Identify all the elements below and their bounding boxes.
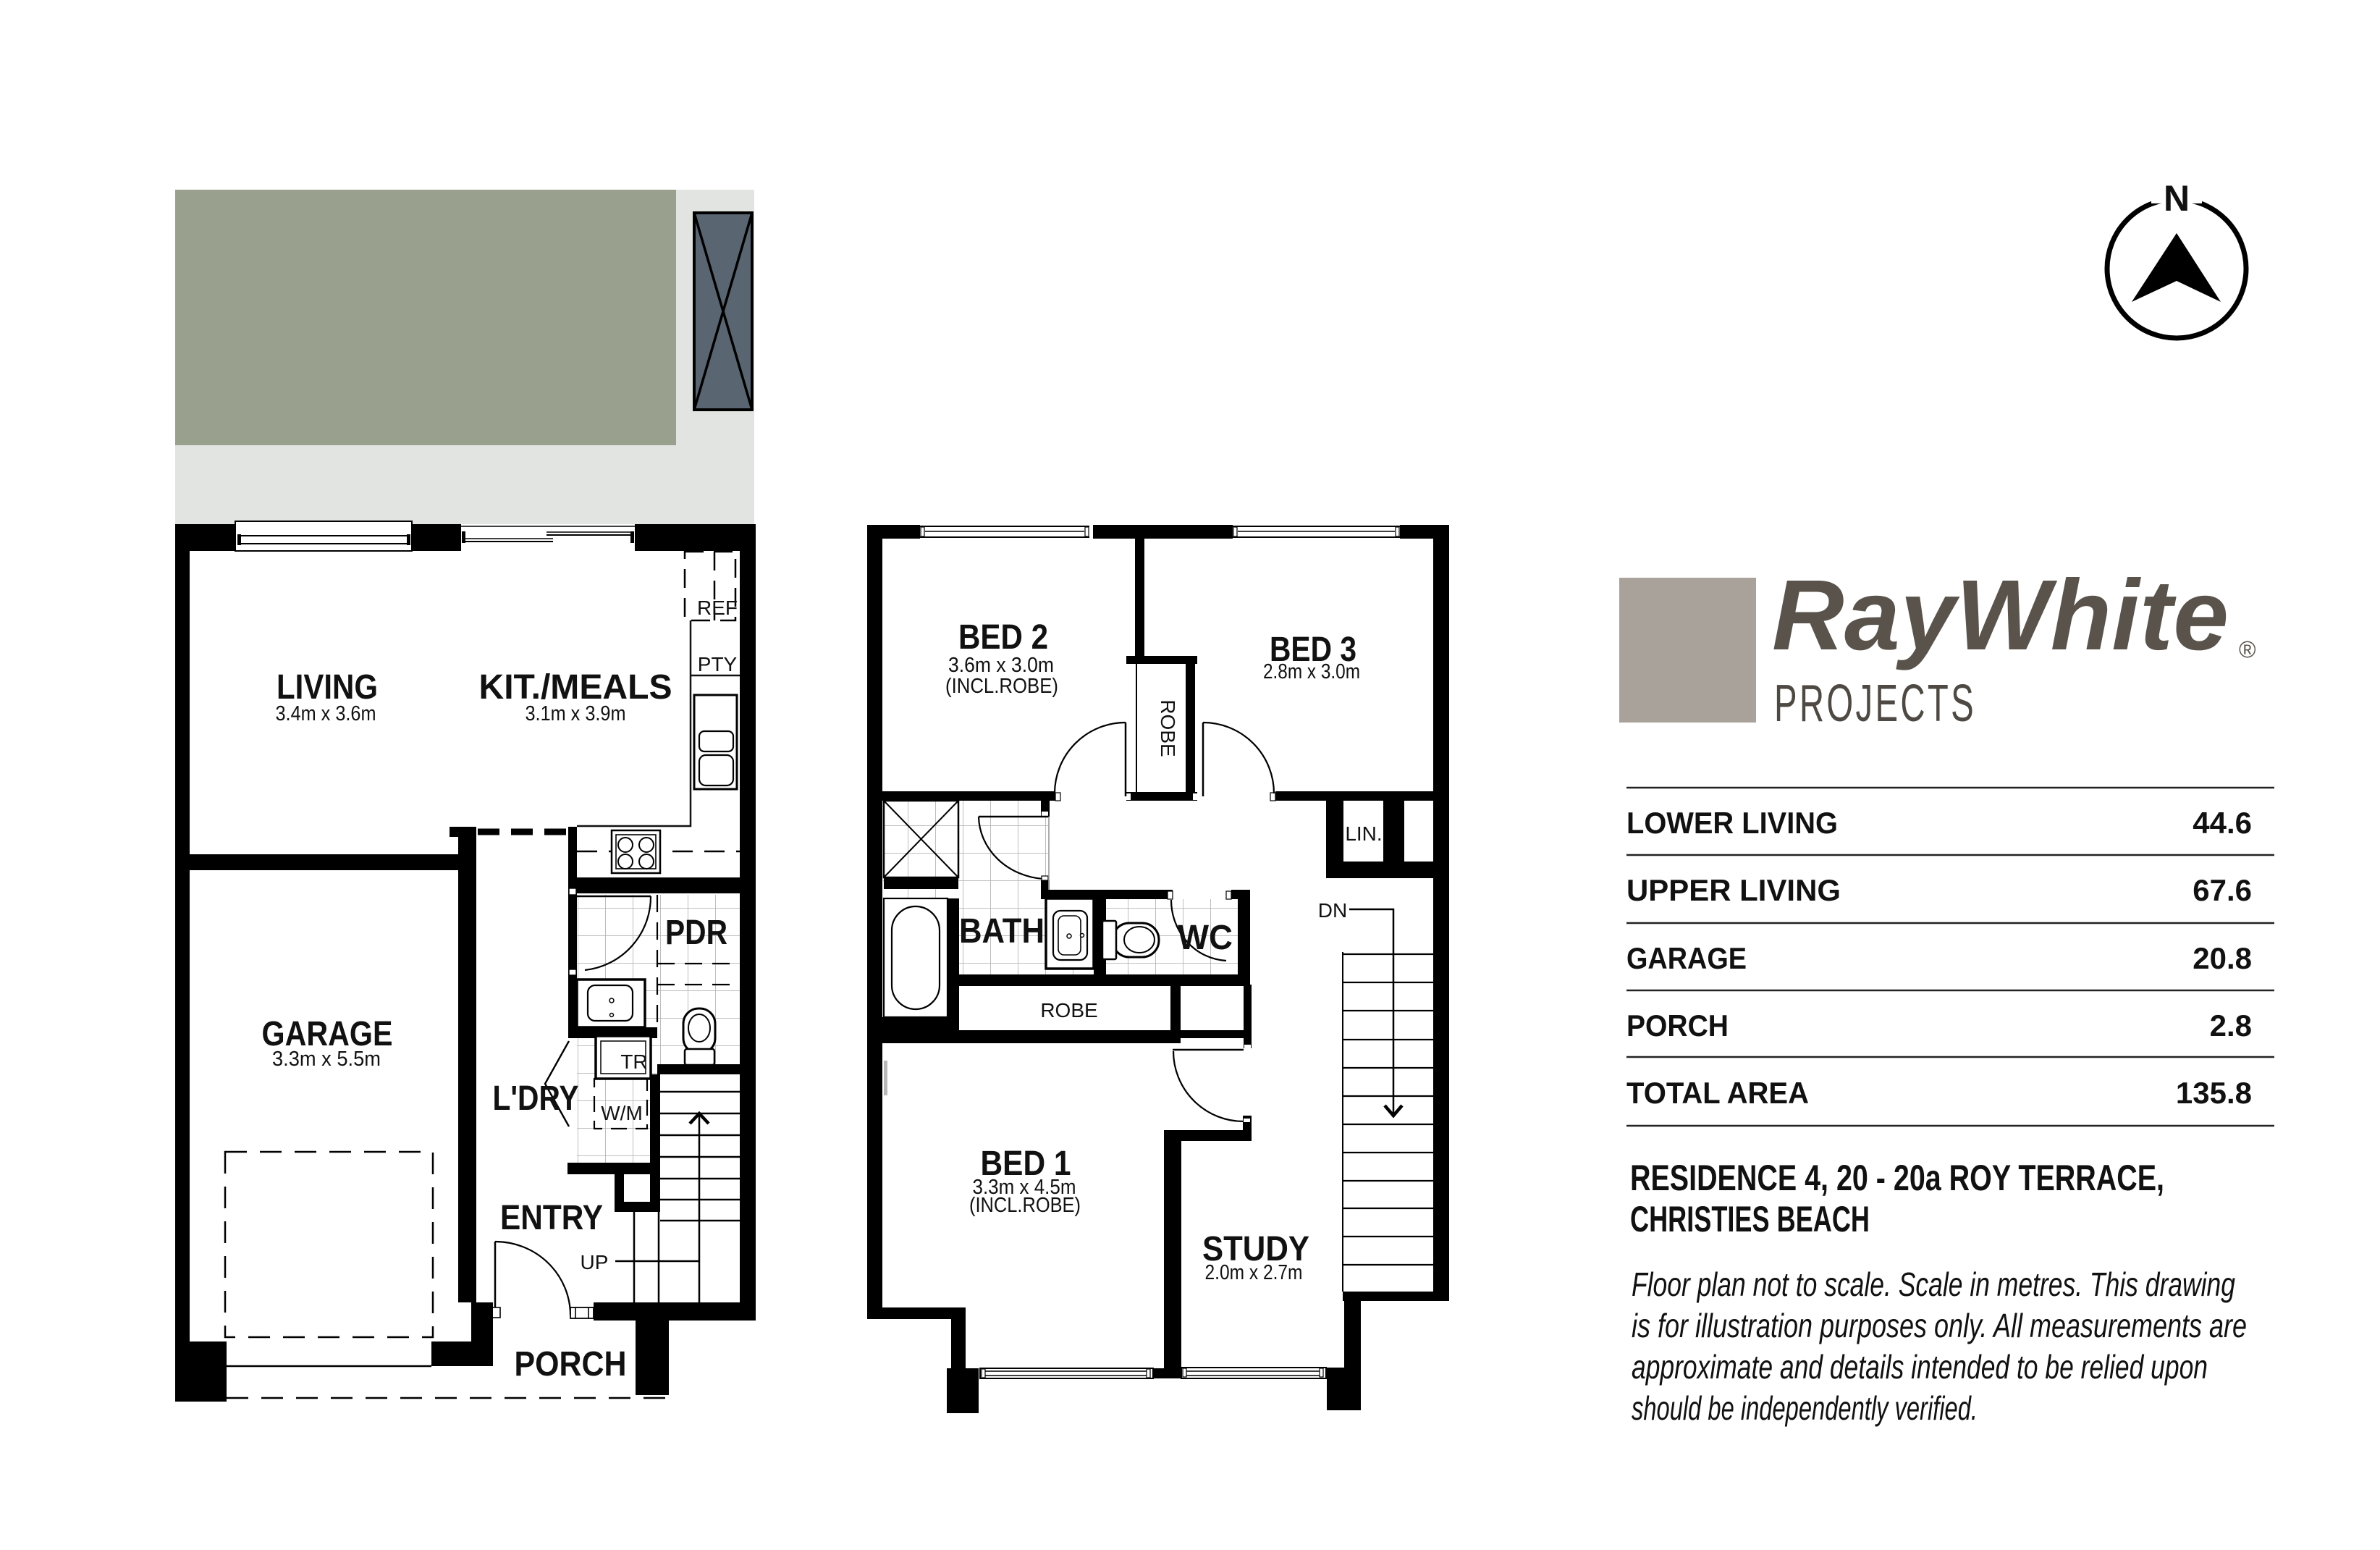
- svg-text:BATH: BATH: [959, 912, 1045, 951]
- svg-text:ROBE: ROBE: [1157, 699, 1179, 757]
- svg-text:2.8: 2.8: [2210, 1008, 2252, 1043]
- svg-text:PROJECTS: PROJECTS: [1774, 675, 1976, 733]
- svg-text:3.3m x 5.5m: 3.3m x 5.5m: [272, 1048, 381, 1071]
- svg-text:67.6: 67.6: [2193, 873, 2252, 907]
- svg-text:®: ®: [2239, 636, 2256, 662]
- svg-text:is for illustration purposes o: is for illustration purposes only. All m…: [1632, 1307, 2247, 1344]
- svg-text:UP: UP: [581, 1251, 609, 1273]
- svg-text:TOTAL AREA: TOTAL AREA: [1626, 1076, 1809, 1110]
- svg-text:44.6: 44.6: [2193, 806, 2252, 840]
- svg-text:PTY: PTY: [698, 653, 738, 675]
- svg-text:PORCH: PORCH: [1626, 1008, 1729, 1043]
- svg-text:135.8: 135.8: [2176, 1076, 2252, 1110]
- svg-text:WC: WC: [1178, 919, 1233, 957]
- svg-text:W/M: W/M: [601, 1102, 643, 1124]
- svg-text:3.1m x 3.9m: 3.1m x 3.9m: [526, 702, 626, 725]
- svg-text:3.4m x 3.6m: 3.4m x 3.6m: [276, 702, 376, 725]
- svg-text:PDR: PDR: [665, 914, 727, 952]
- svg-text:REF: REF: [697, 597, 738, 619]
- svg-text:LIN.: LIN.: [1345, 822, 1382, 845]
- svg-text:N: N: [2164, 178, 2190, 219]
- svg-text:RayWhite: RayWhite: [1772, 560, 2227, 671]
- svg-text:2.0m x 2.7m: 2.0m x 2.7m: [1205, 1261, 1303, 1284]
- svg-text:LIVING: LIVING: [277, 668, 378, 707]
- svg-text:should be independently verifi: should be independently verified.: [1632, 1389, 1978, 1427]
- svg-text:L'DRY: L'DRY: [493, 1079, 579, 1118]
- svg-text:LOWER LIVING: LOWER LIVING: [1626, 806, 1838, 840]
- svg-text:BED 2: BED 2: [958, 618, 1048, 657]
- svg-text:PORCH: PORCH: [515, 1345, 627, 1383]
- svg-text:ENTRY: ENTRY: [500, 1199, 603, 1237]
- svg-text:DN: DN: [1318, 899, 1347, 922]
- svg-text:CHRISTIES BEACH: CHRISTIES BEACH: [1630, 1199, 1870, 1239]
- svg-text:GARAGE: GARAGE: [1626, 941, 1747, 975]
- svg-text:(INCL.ROBE): (INCL.ROBE): [945, 675, 1058, 698]
- svg-text:3.6m x 3.0m: 3.6m x 3.0m: [948, 654, 1054, 677]
- svg-text:UPPER LIVING: UPPER LIVING: [1626, 873, 1841, 907]
- svg-text:approximate and details intend: approximate and details intended to be r…: [1632, 1348, 2208, 1386]
- svg-text:20.8: 20.8: [2193, 941, 2252, 975]
- svg-text:Floor plan not to scale. Scale: Floor plan not to scale. Scale in metres…: [1632, 1265, 2235, 1303]
- svg-text:RESIDENCE 4, 20 - 20a ROY TERR: RESIDENCE 4, 20 - 20a ROY TERRACE,: [1630, 1158, 2164, 1198]
- svg-text:(INCL.ROBE): (INCL.ROBE): [969, 1194, 1081, 1217]
- svg-text:ROBE: ROBE: [1040, 999, 1097, 1022]
- svg-text:KIT./MEALS: KIT./MEALS: [479, 668, 672, 707]
- svg-text:TR: TR: [620, 1050, 647, 1073]
- svg-text:2.8m x 3.0m: 2.8m x 3.0m: [1263, 660, 1360, 683]
